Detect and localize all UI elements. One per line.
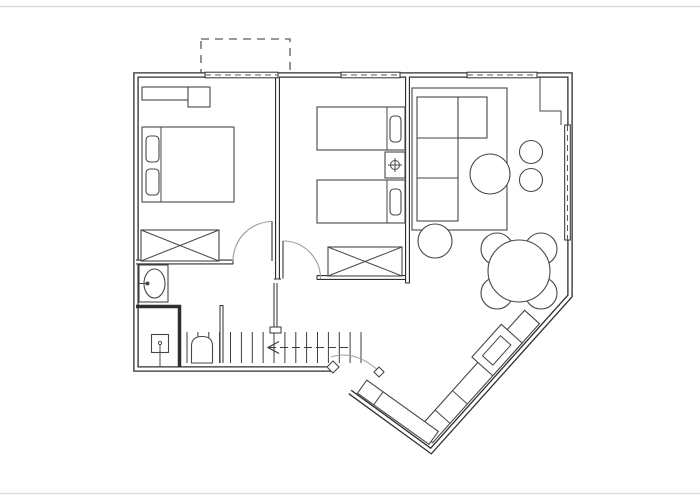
- window-top-3: [467, 72, 537, 78]
- window-right: [565, 125, 571, 240]
- double-bed: [142, 127, 234, 202]
- bathroom: [139, 265, 169, 366]
- bedroom-2: [317, 107, 405, 276]
- pouf: [418, 224, 452, 258]
- hall-railing: [270, 283, 281, 333]
- tap-icon: [146, 282, 150, 286]
- bedroom2-door: [283, 241, 321, 279]
- bedroom1-door: [233, 222, 273, 262]
- built-in-closet-shelf: [142, 87, 188, 100]
- stool-1: [520, 141, 543, 164]
- washbasin: [139, 265, 168, 302]
- coffee-table: [470, 154, 510, 194]
- wardrobe-crossed-2: [328, 247, 402, 276]
- nightstand: [385, 152, 405, 178]
- kitchen-counter-return: [357, 380, 438, 444]
- kitchen-counter-main: [412, 305, 540, 443]
- floor-plan-drawing: [0, 0, 700, 500]
- pillow: [146, 169, 159, 195]
- built-in-closet-block: [188, 87, 210, 107]
- twin-bed-2: [317, 180, 405, 223]
- pillow: [390, 189, 401, 215]
- stair-direction-arrow: [268, 342, 350, 354]
- dining-area: [481, 233, 557, 309]
- kitchen: [357, 305, 539, 444]
- stool-2: [520, 169, 543, 192]
- wardrobe-crossed-1: [141, 230, 219, 261]
- corner-alcove-step: [540, 77, 561, 125]
- window-top-1: [205, 72, 278, 78]
- pillow: [146, 136, 159, 162]
- staircase: [187, 283, 361, 363]
- shower-fixture: [152, 335, 169, 367]
- dining-table: [488, 240, 550, 302]
- bedroom-1: [141, 87, 234, 261]
- entry-door: [327, 355, 384, 377]
- window-top-2: [341, 72, 400, 78]
- twin-bed-1: [317, 107, 405, 150]
- arched-fixture: [192, 337, 213, 364]
- stair-partition: [220, 305, 224, 363]
- living-room: [412, 88, 543, 258]
- floor-plan-canvas: [0, 0, 700, 500]
- pillow: [390, 116, 401, 142]
- balcony-dashed-outline: [201, 39, 290, 74]
